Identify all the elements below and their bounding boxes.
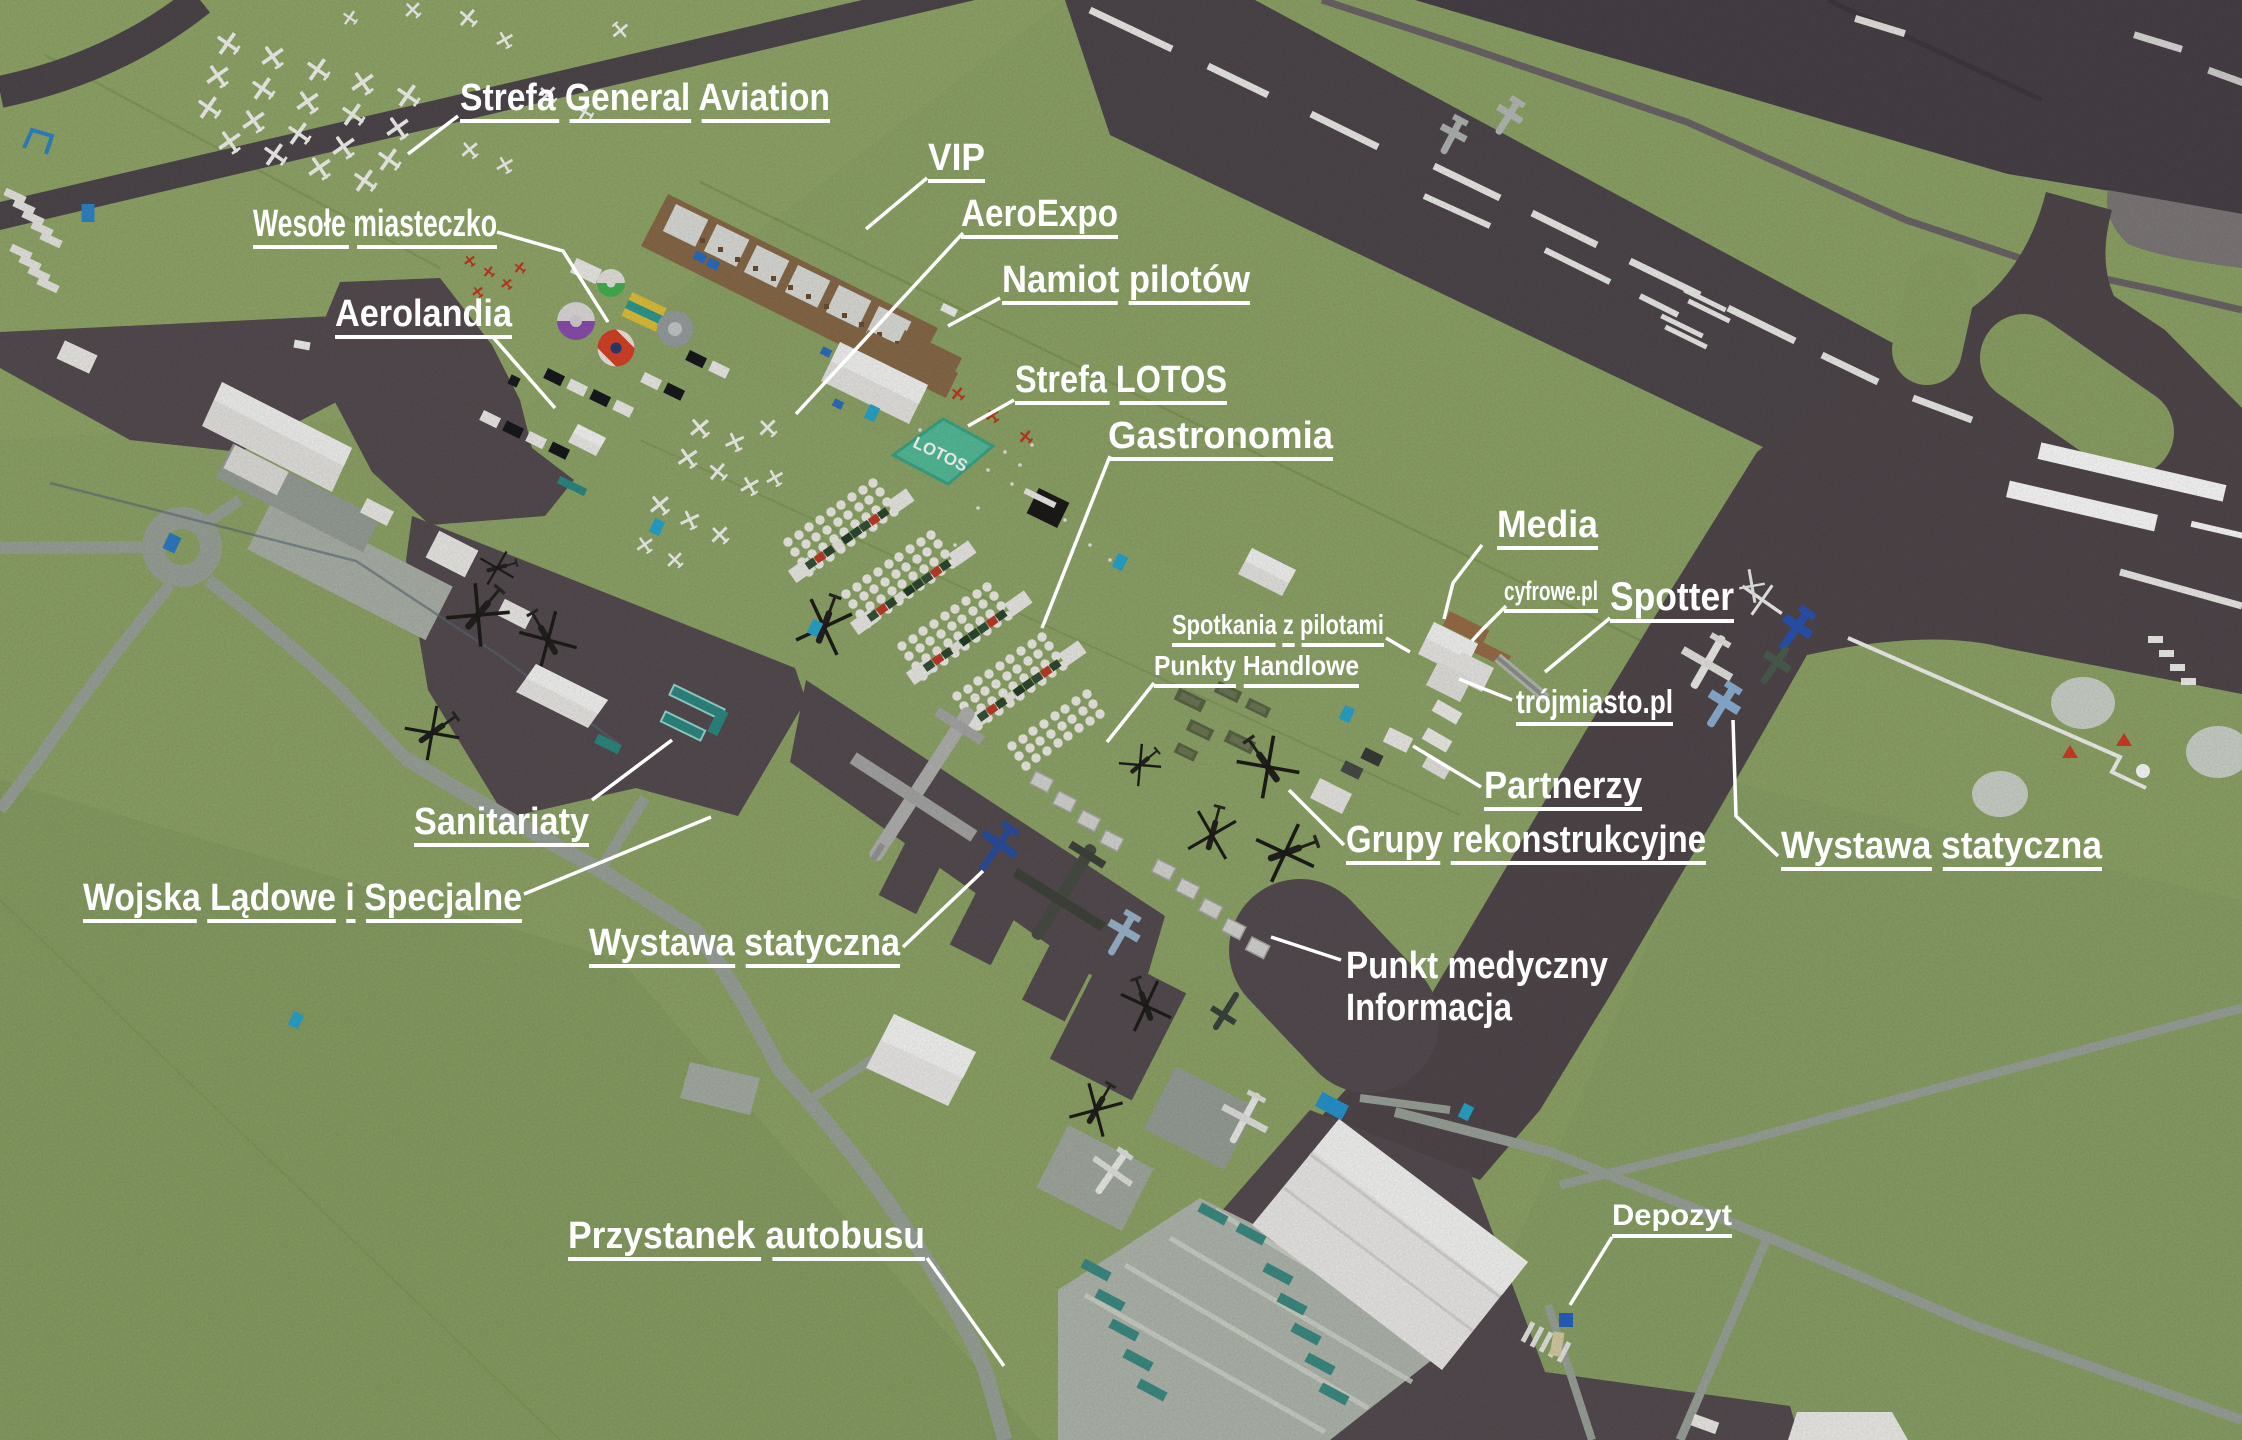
svg-text:Gastronomia: Gastronomia xyxy=(1108,415,1334,457)
svg-text:Strefa LOTOS: Strefa LOTOS xyxy=(1015,359,1227,401)
svg-text:Punkty Handlowe: Punkty Handlowe xyxy=(1154,650,1359,681)
svg-text:Przystanek autobusu: Przystanek autobusu xyxy=(568,1215,925,1257)
svg-text:Partnerzy: Partnerzy xyxy=(1484,765,1642,807)
svg-text:trójmiasto.pl: trójmiasto.pl xyxy=(1516,683,1673,720)
svg-text:Wystawa statyczna: Wystawa statyczna xyxy=(1781,825,2103,867)
svg-text:Depozyt: Depozyt xyxy=(1612,1199,1732,1232)
svg-text:Wesołe miasteczko: Wesołe miasteczko xyxy=(253,203,497,245)
svg-text:Spotkania z pilotami: Spotkania z pilotami xyxy=(1172,609,1384,640)
svg-text:Wojska Lądowe i Specjalne: Wojska Lądowe i Specjalne xyxy=(83,877,522,919)
svg-text:Grupy rekonstrukcyjne: Grupy rekonstrukcyjne xyxy=(1346,819,1706,861)
svg-text:Punkt medyczny: Punkt medyczny xyxy=(1346,945,1608,987)
svg-text:Informacja: Informacja xyxy=(1346,987,1513,1029)
svg-text:Sanitariaty: Sanitariaty xyxy=(414,801,589,843)
svg-text:cyfrowe.pl: cyfrowe.pl xyxy=(1504,576,1598,606)
svg-text:Spotter: Spotter xyxy=(1610,575,1734,619)
svg-text:Strefa General Aviation: Strefa General Aviation xyxy=(460,77,830,119)
svg-text:Aerolandia: Aerolandia xyxy=(335,293,513,335)
svg-text:Namiot pilotów: Namiot pilotów xyxy=(1002,259,1250,301)
svg-text:Media: Media xyxy=(1497,504,1599,546)
svg-text:VIP: VIP xyxy=(928,137,985,179)
svg-text:Wystawa statyczna: Wystawa statyczna xyxy=(589,922,901,964)
svg-text:AeroExpo: AeroExpo xyxy=(961,193,1118,235)
